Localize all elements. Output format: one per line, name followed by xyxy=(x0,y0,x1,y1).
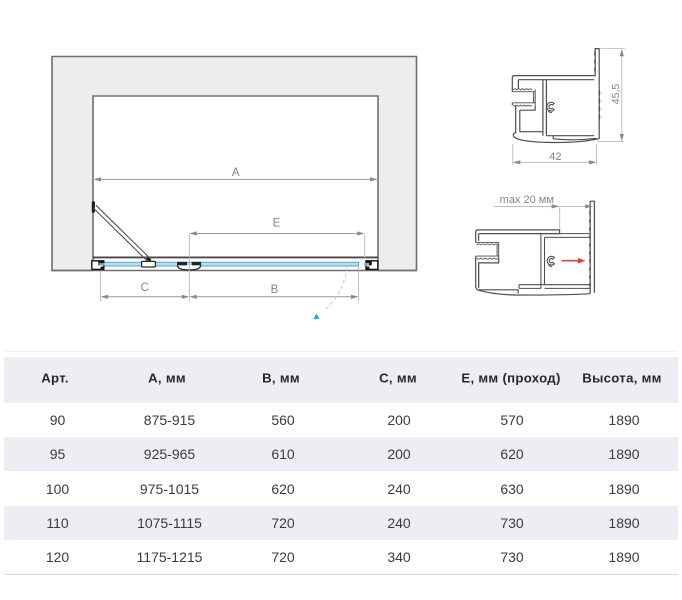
svg-text:42: 42 xyxy=(549,151,561,163)
svg-text:A: A xyxy=(232,167,240,179)
svg-text:E: E xyxy=(273,217,281,229)
svg-text:C: C xyxy=(141,282,149,294)
svg-text:B: B xyxy=(271,284,279,296)
svg-text:max 20 мм: max 20 мм xyxy=(500,194,554,206)
svg-text:45,5: 45,5 xyxy=(610,84,622,105)
